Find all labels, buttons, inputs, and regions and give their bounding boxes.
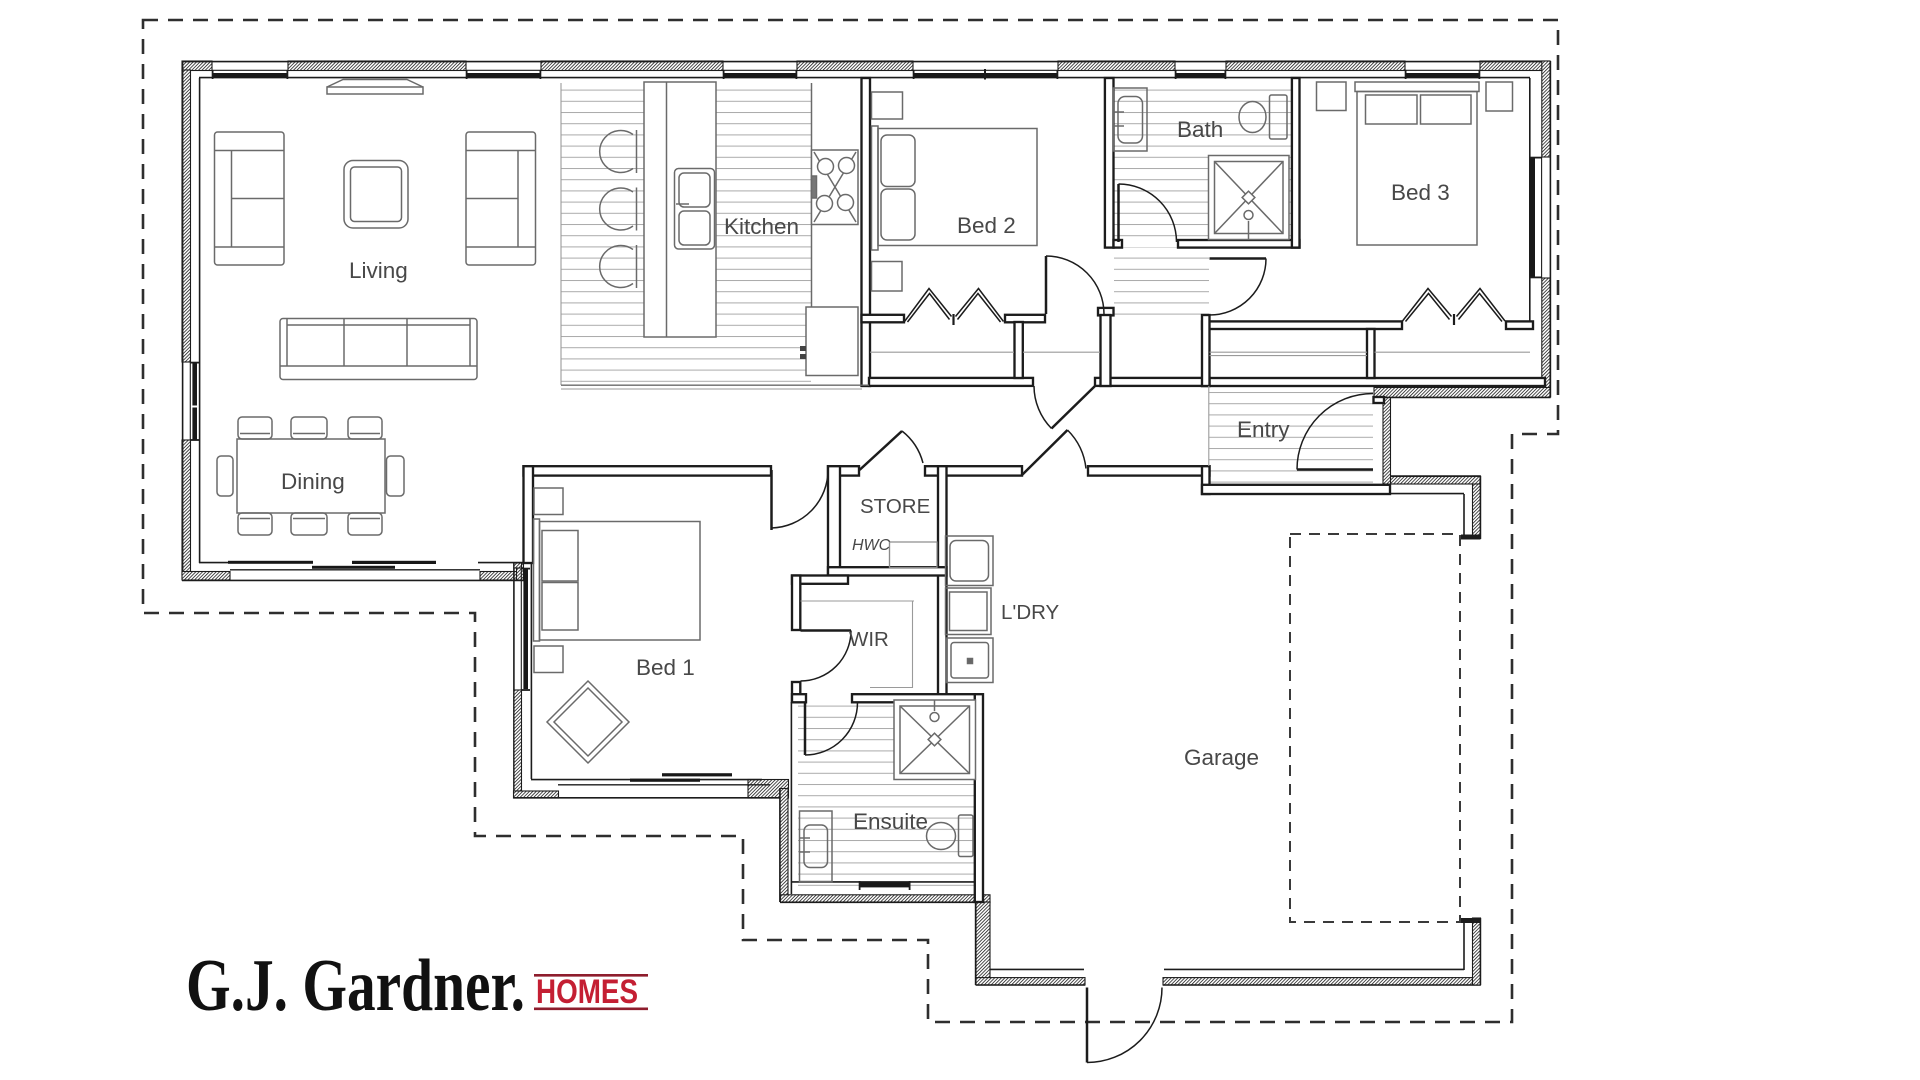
svg-text:Garage: Garage [1184,745,1259,770]
svg-text:Bath: Bath [1177,117,1223,142]
svg-text:G.J. Gardner.: G.J. Gardner. [186,945,525,1027]
svg-text:Bed 1: Bed 1 [636,655,695,680]
svg-text:L'DRY: L'DRY [1001,601,1060,624]
svg-text:Living: Living [349,258,408,283]
svg-text:HOMES: HOMES [536,973,638,1011]
svg-text:Entry: Entry [1237,417,1290,442]
svg-text:Bed 3: Bed 3 [1391,180,1450,205]
svg-text:WIR: WIR [849,628,889,651]
svg-text:STORE: STORE [860,495,930,518]
svg-text:Dining: Dining [281,469,345,494]
svg-text:Ensuite: Ensuite [853,809,928,834]
svg-text:Bed 2: Bed 2 [957,213,1016,238]
svg-text:Kitchen: Kitchen [724,214,799,239]
svg-text:HWC: HWC [852,537,891,554]
